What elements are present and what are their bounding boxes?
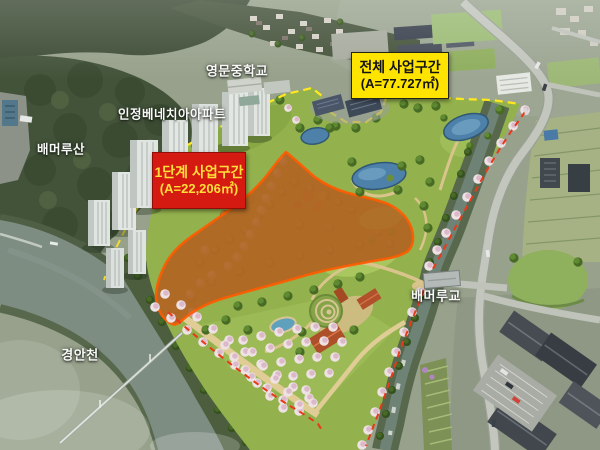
- phase1-project-area-title: 1단계 사업구간: [155, 163, 244, 181]
- aerial-photo: [0, 0, 600, 450]
- label-bridge: 배머루교: [411, 286, 461, 305]
- total-project-area-title: 전체 사업구간: [359, 58, 440, 76]
- label-apartment: 인정베네치아아파트: [118, 104, 226, 123]
- label-mountain: 배머루산: [37, 139, 85, 158]
- phase1-project-area-value: (A=22,206㎡): [160, 181, 238, 198]
- label-stream: 경안천: [61, 345, 98, 364]
- total-project-area-box: 전체 사업구간 (A=77.727㎡): [351, 52, 449, 99]
- label-school: 영문중학교: [206, 61, 268, 80]
- aerial-site-plan: 영문중학교 인정베네치아아파트 배머루산 경안천 배머루교 전체 사업구간 (A…: [0, 0, 600, 450]
- total-project-area-value: (A=77.727㎡): [361, 76, 439, 93]
- phase1-project-area-box: 1단계 사업구간 (A=22,206㎡): [152, 152, 246, 209]
